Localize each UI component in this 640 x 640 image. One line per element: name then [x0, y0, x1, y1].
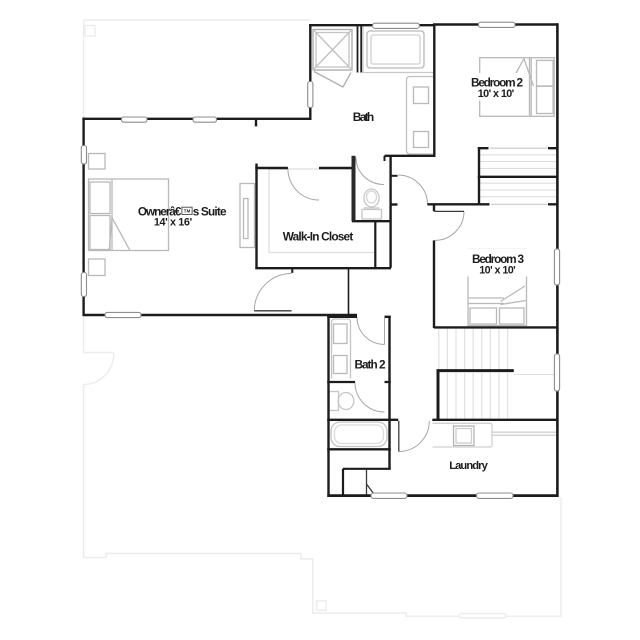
svg-text:Laundry: Laundry: [449, 460, 488, 472]
svg-text:Bath 2: Bath 2: [355, 358, 386, 372]
svg-text:Ownerâ€: Ownerâ€: [138, 205, 182, 219]
svg-text:s Suite: s Suite: [193, 205, 227, 219]
svg-text:10' x 10': 10' x 10': [478, 88, 515, 100]
svg-text:Walk-In Closet: Walk-In Closet: [283, 230, 354, 244]
svg-text:TM: TM: [184, 209, 191, 214]
svg-text:Bath: Bath: [353, 110, 375, 124]
svg-text:10' x 10': 10' x 10': [479, 264, 516, 276]
